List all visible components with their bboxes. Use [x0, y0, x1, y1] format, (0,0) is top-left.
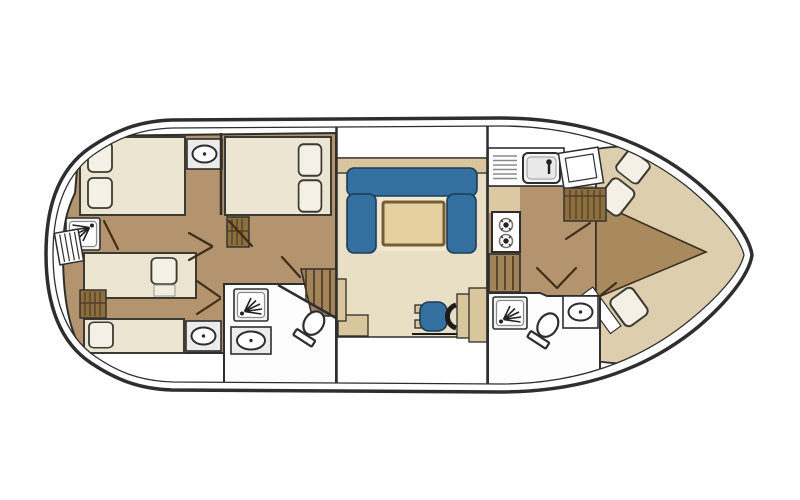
helm-desk [469, 288, 487, 342]
pillow [151, 258, 176, 284]
pillow [299, 144, 322, 176]
sofa-back-bench [347, 168, 477, 196]
sink [523, 153, 560, 183]
shower-icon [493, 297, 527, 329]
pillow [299, 180, 322, 212]
tilted-counter [558, 147, 603, 189]
sofa-left-arm [347, 194, 376, 253]
helm-seat [420, 302, 447, 331]
sofa-right-arm [447, 194, 476, 253]
pillow [89, 322, 113, 348]
pillow [88, 178, 112, 208]
helm-console [457, 294, 470, 338]
faucet-icon [546, 159, 552, 165]
washbasin [563, 296, 598, 328]
boarding-steps [54, 229, 83, 265]
burner-icon [500, 235, 513, 248]
blanket [154, 285, 175, 296]
bow-cabin [582, 147, 746, 364]
burner-icon [500, 219, 513, 232]
washbasin-icon [186, 321, 221, 351]
washbasin-icon [187, 139, 222, 169]
boat-floor-plan [0, 0, 800, 500]
salon-table [383, 202, 444, 245]
washbasin [231, 327, 271, 354]
wardrobe [564, 188, 606, 221]
shower-icon [234, 289, 268, 321]
louvered-steps [489, 254, 520, 292]
wardrobe [80, 290, 106, 318]
galley-floor-strip [489, 187, 520, 213]
stove [492, 212, 520, 252]
floor-plan-canvas [0, 0, 800, 500]
